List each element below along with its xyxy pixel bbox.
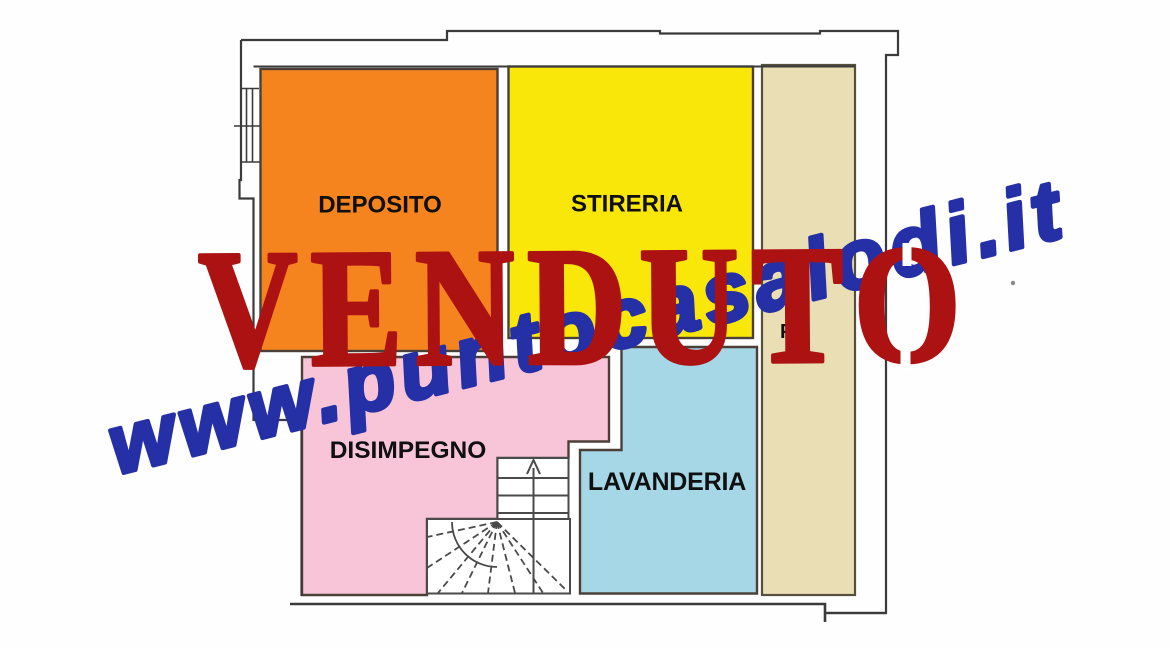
svg-text:VENDUTO: VENDUTO <box>198 211 974 402</box>
svg-text:DISIMPEGNO: DISIMPEGNO <box>330 437 487 464</box>
svg-text:LAVANDERIA: LAVANDERIA <box>588 468 746 496</box>
